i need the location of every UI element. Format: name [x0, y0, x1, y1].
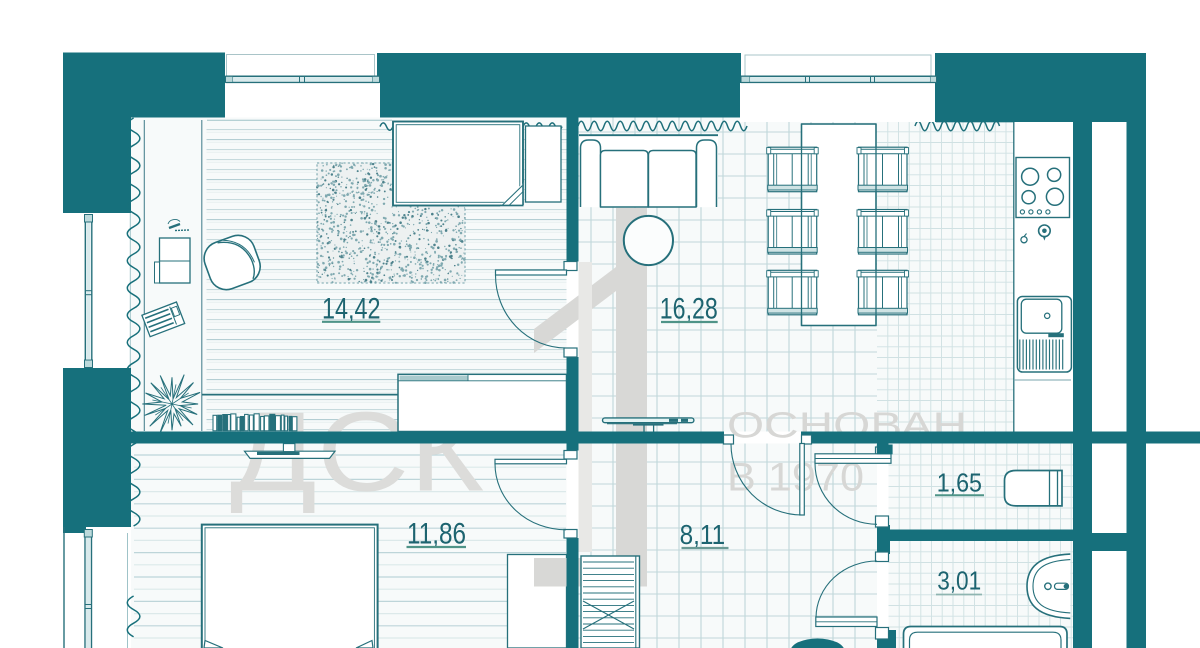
svg-text:11,86: 11,86 — [407, 518, 466, 551]
svg-text:1,65: 1,65 — [937, 469, 982, 497]
svg-text:16,28: 16,28 — [660, 293, 718, 326]
svg-text:3,01: 3,01 — [937, 566, 981, 596]
svg-text:8,11: 8,11 — [680, 519, 726, 550]
svg-text:14,42: 14,42 — [322, 293, 381, 326]
